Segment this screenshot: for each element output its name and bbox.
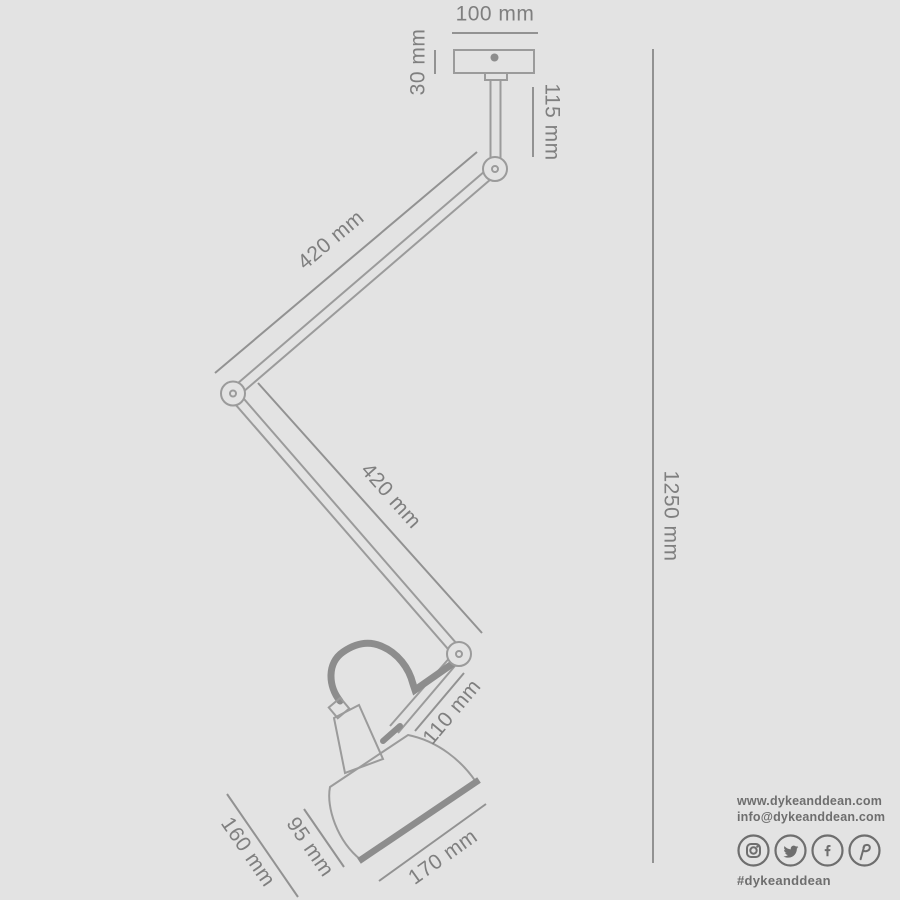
dim-label-overall-drop: 1250 mm [660, 470, 683, 561]
dim-line-upper-arm [215, 152, 477, 373]
pinterest-icon[interactable] [848, 834, 881, 867]
brand-footer: www.dykeanddean.com info@dykeanddean.com [737, 793, 895, 888]
contact-email: info@dykeanddean.com [737, 809, 895, 825]
dim-label-canopy-height: 30 mm [407, 29, 430, 96]
ceiling-stem [485, 73, 507, 160]
social-icons-row [737, 834, 895, 867]
joint-top [483, 157, 507, 181]
dim-label-lower-arm: 420 mm [356, 459, 425, 533]
dim-line-lower-arm [258, 383, 482, 633]
dim-label-plate-width: 100 mm [456, 3, 535, 26]
ceiling-plate [454, 50, 534, 73]
joint-bottom [447, 642, 471, 666]
brand-hashtag: #dykeanddean [737, 873, 895, 888]
fixing-screw-dot [491, 54, 499, 62]
lower-arm [229, 391, 463, 658]
joint-middle [221, 382, 245, 406]
dimension-lines [215, 33, 653, 897]
power-cable [331, 643, 455, 701]
facebook-icon[interactable] [811, 834, 844, 867]
website-url: www.dykeanddean.com [737, 793, 895, 809]
dim-label-upper-arm: 420 mm [293, 206, 368, 274]
product-dimension-diagram: 100 mm 30 mm 115 mm 420 mm 420 mm 1250 m… [0, 0, 900, 900]
lamp-technical-drawing: 100 mm 30 mm 115 mm 420 mm 420 mm 1250 m… [0, 0, 900, 900]
instagram-icon[interactable] [737, 834, 770, 867]
dim-label-stem-drop: 115 mm [541, 83, 564, 160]
lamp-neck [334, 705, 383, 773]
upper-arm [230, 165, 499, 398]
twitter-icon[interactable] [774, 834, 807, 867]
shade-bracket [383, 726, 400, 741]
